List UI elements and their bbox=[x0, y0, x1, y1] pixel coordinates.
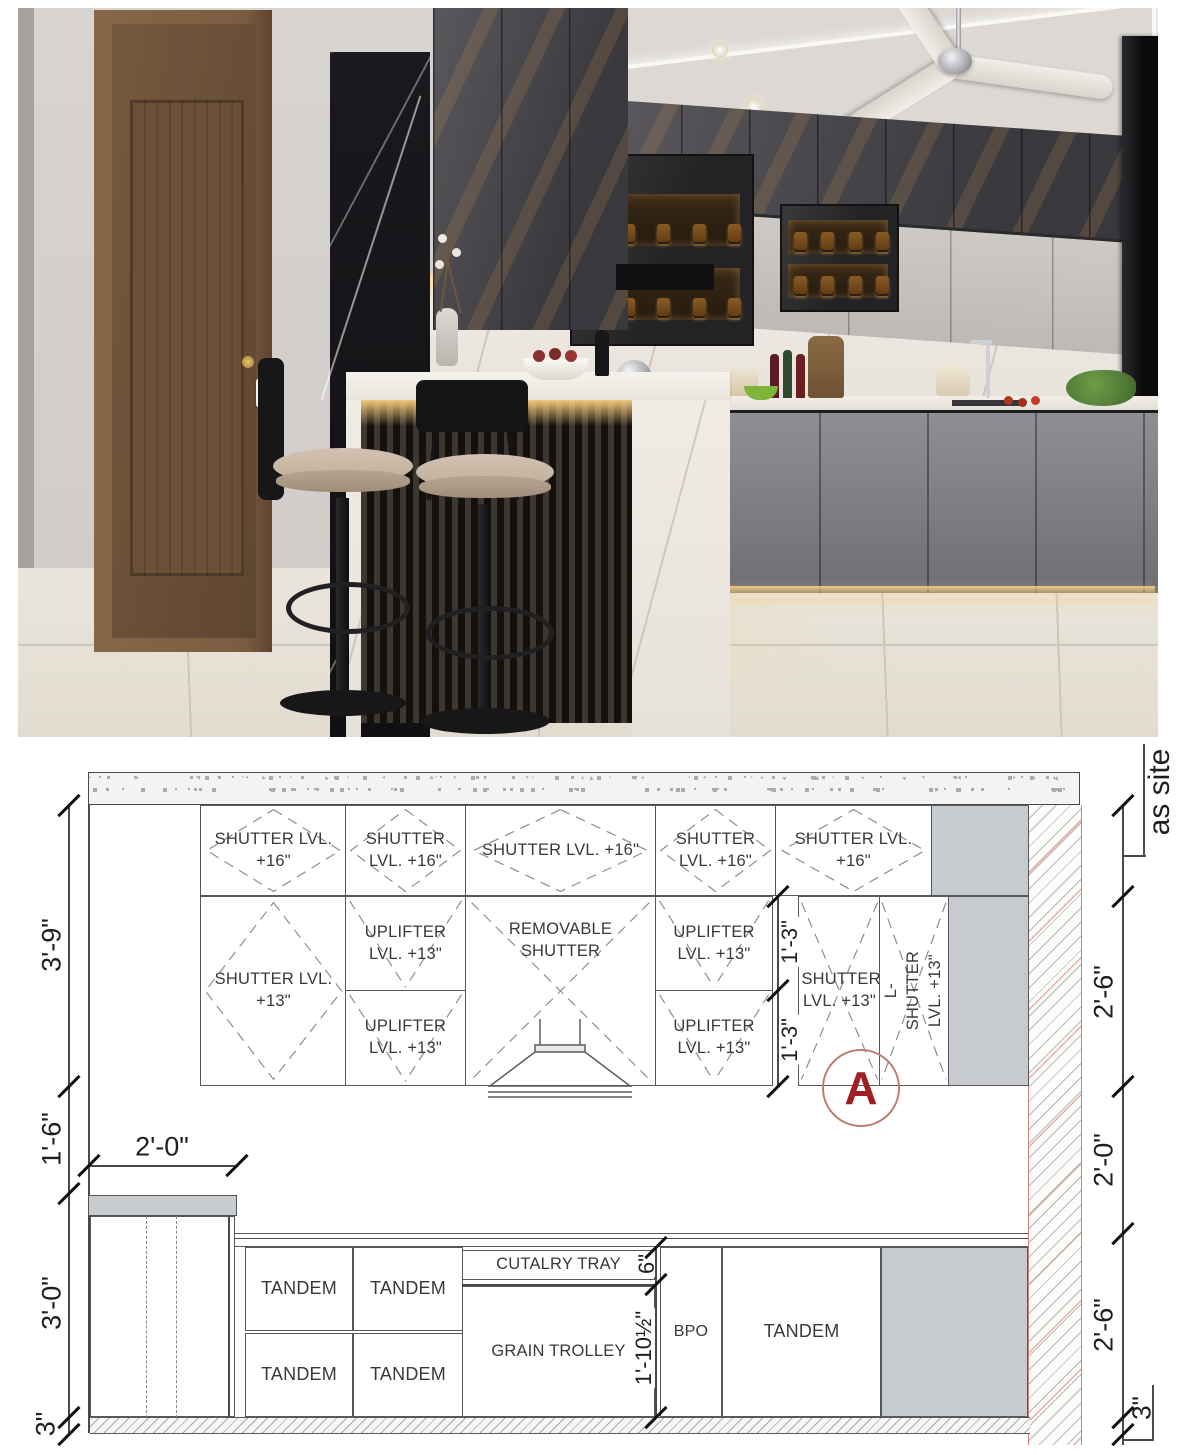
concrete-speckle bbox=[1008, 788, 1010, 790]
spice-jar bbox=[657, 224, 670, 244]
concrete-speckle bbox=[330, 788, 334, 792]
concrete-speckle bbox=[688, 776, 691, 779]
l-shutter-cell: L-SHUTTER LVL. +13" bbox=[879, 896, 949, 1086]
fruits bbox=[533, 350, 545, 362]
cell-label: TANDEM bbox=[764, 1320, 840, 1344]
base-gray-panel bbox=[881, 1247, 1028, 1417]
stool-base bbox=[280, 690, 406, 716]
concrete-speckle bbox=[245, 775, 249, 779]
uplifter-cell: UPLIFTER LVL. +13" bbox=[655, 896, 773, 992]
cell-label: TANDEM bbox=[370, 1277, 446, 1301]
concrete-speckle bbox=[1053, 788, 1056, 791]
bpo-cell: BPO bbox=[660, 1247, 722, 1417]
concrete-speckle bbox=[269, 788, 272, 791]
concrete-speckle bbox=[340, 788, 344, 792]
concrete-speckle bbox=[645, 788, 649, 792]
cell-label: SHUTTER LVL. +13" bbox=[205, 969, 341, 1013]
wine-bottle bbox=[796, 354, 805, 398]
concrete-speckle bbox=[761, 776, 765, 780]
concrete-speckle bbox=[1046, 776, 1049, 779]
tandem-drawer-cell: TANDEM bbox=[722, 1247, 881, 1417]
kettle bbox=[936, 364, 970, 396]
concrete-speckle bbox=[382, 776, 385, 779]
tandem-drawer-cell: TANDEM bbox=[245, 1247, 353, 1331]
concrete-speckle bbox=[282, 788, 286, 792]
concrete-speckle bbox=[850, 788, 854, 792]
cell-label: SHUTTER LVL. +16" bbox=[781, 829, 927, 873]
cell-label: L-SHUTTER LVL. +13" bbox=[881, 951, 946, 1030]
concrete-speckle bbox=[279, 776, 281, 778]
concrete-speckle bbox=[452, 775, 456, 779]
spice-jar bbox=[876, 276, 889, 296]
dim-label: 1'-3" bbox=[777, 917, 803, 967]
concrete-speckle bbox=[503, 788, 506, 791]
concrete-speckle bbox=[269, 776, 273, 780]
cell-label: UPLIFTER LVL. +13" bbox=[350, 922, 462, 966]
concrete-speckle bbox=[391, 788, 393, 790]
dim-label: 2'-6" bbox=[1089, 965, 1120, 1019]
concrete-speckle bbox=[307, 788, 309, 790]
concrete-speckle bbox=[512, 776, 515, 779]
concrete-speckle bbox=[483, 788, 487, 792]
concrete-speckle bbox=[860, 775, 864, 779]
stool-seat-side bbox=[276, 470, 410, 492]
concrete-speckle bbox=[832, 776, 835, 779]
island-slat-panel bbox=[361, 400, 632, 723]
concrete-speckle bbox=[531, 788, 535, 792]
stool-base bbox=[420, 708, 550, 734]
spice-jar bbox=[821, 276, 834, 296]
spice-jar bbox=[794, 232, 807, 252]
concrete-speckle bbox=[571, 776, 574, 779]
spice-jar bbox=[657, 298, 670, 318]
concrete-speckle bbox=[1008, 776, 1012, 780]
cotton-bud bbox=[438, 234, 447, 243]
dim-label: 3" bbox=[1127, 1396, 1158, 1420]
concrete-speckle bbox=[542, 788, 544, 790]
concrete-speckle bbox=[609, 776, 612, 779]
concrete-speckle bbox=[956, 788, 960, 792]
inner-dim-line bbox=[655, 1247, 657, 1417]
concrete-speckle bbox=[483, 776, 488, 781]
concrete-speckle bbox=[744, 776, 746, 778]
wine-bottle bbox=[783, 350, 792, 398]
concrete-speckle bbox=[107, 776, 110, 779]
concrete-speckle bbox=[838, 788, 841, 791]
concrete-speckle bbox=[715, 776, 717, 778]
concrete-speckle bbox=[717, 788, 719, 790]
concrete-speckle bbox=[1058, 788, 1062, 792]
cell-label: UPLIFTER LVL. +13" bbox=[659, 1016, 768, 1060]
concrete-speckle bbox=[1063, 788, 1065, 790]
concrete-speckle bbox=[929, 788, 933, 792]
stool-footrest-ring bbox=[286, 582, 410, 634]
chopping-board bbox=[808, 336, 844, 398]
dim-label: as site bbox=[1143, 749, 1177, 836]
tall-unit-inner-line bbox=[228, 1216, 230, 1417]
concrete-speckle bbox=[175, 788, 177, 790]
dark-bottle bbox=[595, 330, 609, 376]
dim-line-2-0 bbox=[88, 1165, 237, 1167]
cell-label: CUTALRY TRAY bbox=[496, 1254, 621, 1276]
cell-label: SHUTTER LVL. +13" bbox=[801, 969, 877, 1013]
door-panel bbox=[130, 100, 244, 576]
concrete-speckle bbox=[1021, 776, 1023, 778]
concrete-speckle bbox=[301, 776, 304, 779]
kitchen-render-photo bbox=[18, 8, 1158, 737]
fan-hub bbox=[938, 48, 972, 74]
skirting-hatch bbox=[90, 1417, 1030, 1434]
concrete-speckle bbox=[89, 776, 91, 778]
upper-shutter-cell: SHUTTER LVL. +16" bbox=[655, 805, 776, 896]
cell-label: UPLIFTER LVL. +13" bbox=[350, 1016, 462, 1060]
concrete-speckle bbox=[805, 788, 809, 792]
upper-shutter-cell: SHUTTER LVL. +13" bbox=[200, 896, 347, 1086]
concrete-speckle bbox=[458, 788, 460, 790]
cell-label: UPLIFTER LVL. +13" bbox=[659, 922, 768, 966]
concrete-speckle bbox=[971, 788, 974, 791]
concrete-speckle bbox=[751, 776, 753, 778]
left-dim-line bbox=[68, 805, 70, 1434]
upper-gray-panel bbox=[931, 805, 1029, 896]
concrete-speckle bbox=[772, 776, 775, 779]
concrete-speckle bbox=[876, 788, 880, 792]
sink bbox=[952, 400, 1026, 406]
tall-unit-body bbox=[90, 1216, 235, 1417]
cell-label: GRAIN TROLLEY bbox=[491, 1341, 625, 1363]
concrete-speckle bbox=[163, 788, 166, 791]
concrete-speckle bbox=[657, 788, 660, 791]
section-marker-circle: A bbox=[822, 1049, 900, 1127]
concrete-speckle bbox=[368, 788, 371, 791]
tandem-drawer-cell: TANDEM bbox=[353, 1333, 463, 1417]
concrete-speckle bbox=[99, 776, 101, 778]
concrete-speckle bbox=[880, 776, 882, 778]
tall-unit-dashed-line bbox=[176, 1216, 177, 1433]
dim-label: 3'-0" bbox=[37, 1276, 68, 1330]
concrete-speckle bbox=[212, 788, 216, 792]
concrete-speckle bbox=[274, 788, 276, 790]
tandem-drawer-cell: TANDEM bbox=[245, 1333, 353, 1417]
concrete-speckle bbox=[694, 776, 698, 780]
ceiling-spotlight bbox=[712, 42, 728, 58]
spice-jar bbox=[821, 232, 834, 252]
concrete-speckle bbox=[93, 788, 97, 792]
concrete-speckle bbox=[822, 776, 825, 779]
concrete-speckle bbox=[635, 776, 637, 778]
concrete-speckle bbox=[122, 788, 124, 790]
concrete-speckle bbox=[356, 788, 358, 790]
stool-footrest-ring bbox=[426, 606, 554, 660]
cell-label: BPO bbox=[674, 1321, 708, 1342]
concrete-speckle bbox=[106, 788, 109, 791]
concrete-speckle bbox=[293, 788, 296, 791]
grain-trolley-cell: GRAIN TROLLEY bbox=[462, 1286, 655, 1417]
jar-shelf bbox=[788, 220, 888, 254]
section-marker-letter: A bbox=[844, 1065, 877, 1111]
concrete-speckle bbox=[205, 776, 209, 780]
concrete-speckle bbox=[694, 788, 696, 790]
concrete-speckle bbox=[782, 775, 788, 781]
concrete-speckle bbox=[476, 776, 479, 779]
cutlery-tray-cell: CUTALRY TRAY bbox=[462, 1250, 655, 1280]
concrete-speckle bbox=[435, 776, 438, 779]
dim-label: 2'-6" bbox=[1089, 1298, 1120, 1352]
tall-unit-dashed-line bbox=[146, 1216, 147, 1433]
concrete-speckle bbox=[323, 775, 329, 781]
door-handle bbox=[242, 356, 254, 368]
concrete-speckle bbox=[520, 788, 524, 792]
spice-jar bbox=[849, 276, 862, 296]
concrete-speckle bbox=[348, 788, 350, 790]
skirt-dim-leader bbox=[1122, 1439, 1154, 1441]
base-counter-midline bbox=[235, 1238, 1028, 1239]
design-sheet: SHUTTER LVL. +16" SHUTTER LVL. +16" SHUT… bbox=[0, 0, 1179, 1455]
cell-label: REMOVABLE SHUTTER bbox=[472, 919, 650, 963]
concrete-speckle bbox=[772, 788, 776, 792]
concrete-speckle bbox=[242, 776, 245, 779]
concrete-speckle bbox=[363, 776, 367, 780]
faucet-spout bbox=[970, 340, 992, 344]
concrete-speckle bbox=[780, 788, 783, 791]
concrete-speckle bbox=[290, 776, 292, 778]
concrete-speckle bbox=[581, 776, 584, 779]
faucet bbox=[986, 342, 990, 398]
concrete-speckle bbox=[981, 788, 984, 791]
cell-label: SHUTTER LVL. +16" bbox=[205, 829, 341, 873]
dim-label: 2'-0" bbox=[1089, 1133, 1120, 1187]
spice-jar bbox=[794, 276, 807, 296]
concrete-speckle bbox=[416, 776, 420, 780]
concrete-speckle bbox=[555, 776, 559, 780]
concrete-speckle bbox=[965, 776, 967, 778]
cell-label: TANDEM bbox=[261, 1363, 337, 1387]
spice-jar bbox=[849, 232, 862, 252]
spice-jar bbox=[728, 298, 741, 318]
concrete-speckle bbox=[791, 788, 793, 790]
concrete-speckle bbox=[440, 776, 442, 778]
elevation-drawing: SHUTTER LVL. +16" SHUTTER LVL. +16" SHUT… bbox=[0, 740, 1179, 1455]
upper-shutter-cell: SHUTTER LVL. +16" bbox=[465, 805, 656, 896]
dim-label: 1'-10½" bbox=[631, 1308, 657, 1388]
cell-label: TANDEM bbox=[261, 1277, 337, 1301]
concrete-speckle bbox=[438, 788, 441, 791]
cell-label: SHUTTER LVL. +16" bbox=[350, 829, 462, 873]
concrete-speckle bbox=[1013, 776, 1016, 779]
concrete-speckle bbox=[597, 776, 601, 780]
concrete-speckle bbox=[576, 788, 579, 791]
concrete-speckle bbox=[262, 776, 267, 781]
spice-jar bbox=[693, 298, 706, 318]
jar-shelf bbox=[788, 264, 888, 298]
cooker-hood bbox=[616, 264, 714, 290]
concrete-speckle bbox=[957, 775, 963, 781]
ceiling-slab bbox=[88, 772, 1080, 805]
stool-backrest bbox=[416, 380, 528, 432]
concrete-speckle bbox=[702, 775, 706, 779]
herb-greens bbox=[1066, 370, 1136, 406]
cell-label: TANDEM bbox=[370, 1363, 446, 1387]
uplifter-cell: UPLIFTER LVL. +13" bbox=[655, 990, 773, 1086]
concrete-speckle bbox=[394, 788, 397, 791]
uplifter-cell: UPLIFTER LVL. +13" bbox=[345, 896, 466, 992]
right-wall-hatch bbox=[1028, 805, 1082, 1445]
concrete-speckle bbox=[845, 776, 849, 780]
concrete-speckle bbox=[670, 788, 673, 791]
dim-label: 2'-0" bbox=[135, 1132, 189, 1163]
concrete-speckle bbox=[767, 788, 769, 790]
concrete-speckle bbox=[473, 788, 477, 792]
concrete-speckle bbox=[428, 775, 433, 780]
tandem-drawer-cell: TANDEM bbox=[353, 1247, 463, 1331]
concrete-speckle bbox=[581, 788, 585, 792]
concrete-speckle bbox=[724, 788, 727, 791]
concrete-speckle bbox=[954, 776, 957, 779]
concrete-speckle bbox=[944, 788, 946, 790]
upper-shutter-cell: SHUTTER LVL. +16" bbox=[345, 805, 466, 896]
vase bbox=[436, 308, 458, 366]
concrete-speckle bbox=[641, 776, 645, 780]
upper-shutter-cell: SHUTTER LVL. +16" bbox=[775, 805, 932, 896]
spice-jar bbox=[728, 224, 741, 244]
concrete-speckle bbox=[676, 788, 680, 792]
cell-label: SHUTTER LVL. +16" bbox=[660, 829, 772, 873]
concrete-speckle bbox=[510, 788, 513, 791]
concrete-speckle bbox=[532, 776, 534, 778]
concrete-speckle bbox=[314, 788, 316, 790]
upper-cabinet-stack bbox=[433, 8, 628, 330]
dim-label: 3'-9" bbox=[37, 918, 68, 972]
concrete-speckle bbox=[347, 776, 350, 779]
concrete-speckle bbox=[882, 788, 884, 790]
tall-unit-counter bbox=[88, 1195, 237, 1216]
base-counter-band bbox=[235, 1233, 1028, 1247]
uplifter-cell: UPLIFTER LVL. +13" bbox=[345, 990, 466, 1086]
concrete-speckle bbox=[404, 776, 406, 778]
concrete-speckle bbox=[188, 788, 190, 790]
dim-label: 3" bbox=[31, 1412, 62, 1437]
concrete-speckle bbox=[1054, 775, 1059, 780]
stool-seat-side bbox=[419, 476, 551, 498]
chimney-hood bbox=[480, 1015, 640, 1102]
concrete-speckle bbox=[812, 776, 816, 780]
concrete-speckle bbox=[134, 776, 136, 778]
concrete-speckle bbox=[830, 788, 833, 791]
concrete-speckle bbox=[812, 788, 814, 790]
upper-shutter-cell: SHUTTER LVL. +16" bbox=[200, 805, 347, 896]
concrete-speckle bbox=[525, 775, 529, 779]
concrete-speckle bbox=[194, 788, 197, 791]
concrete-speckle bbox=[400, 788, 404, 792]
spice-jar bbox=[876, 232, 889, 252]
tomatoes bbox=[1004, 396, 1013, 405]
spice-jar bbox=[693, 224, 706, 244]
glass-display-cabinet bbox=[780, 204, 899, 312]
concrete-speckle bbox=[190, 776, 193, 779]
concrete-speckle bbox=[922, 776, 926, 780]
concrete-speckle bbox=[588, 775, 593, 780]
dim-label: 1'-3" bbox=[777, 1015, 803, 1065]
dim-label: 1'-6" bbox=[37, 1112, 68, 1166]
concrete-speckle bbox=[141, 788, 145, 792]
concrete-speckle bbox=[316, 788, 319, 791]
concrete-speckle bbox=[935, 788, 938, 791]
upper-gray-panel bbox=[948, 896, 1029, 1086]
island-waterfall-panel bbox=[632, 400, 730, 737]
right-dim-line bbox=[1122, 805, 1124, 1445]
concrete-speckle bbox=[901, 775, 906, 780]
concrete-speckle bbox=[199, 788, 202, 791]
concrete-speckle bbox=[681, 788, 685, 792]
cell-label: SHUTTER LVL. +16" bbox=[482, 840, 639, 862]
concrete-speckle bbox=[334, 776, 337, 779]
concrete-speckle bbox=[728, 776, 732, 780]
concrete-speckle bbox=[571, 788, 573, 790]
concrete-speckle bbox=[487, 788, 489, 790]
concrete-speckle bbox=[232, 776, 234, 778]
